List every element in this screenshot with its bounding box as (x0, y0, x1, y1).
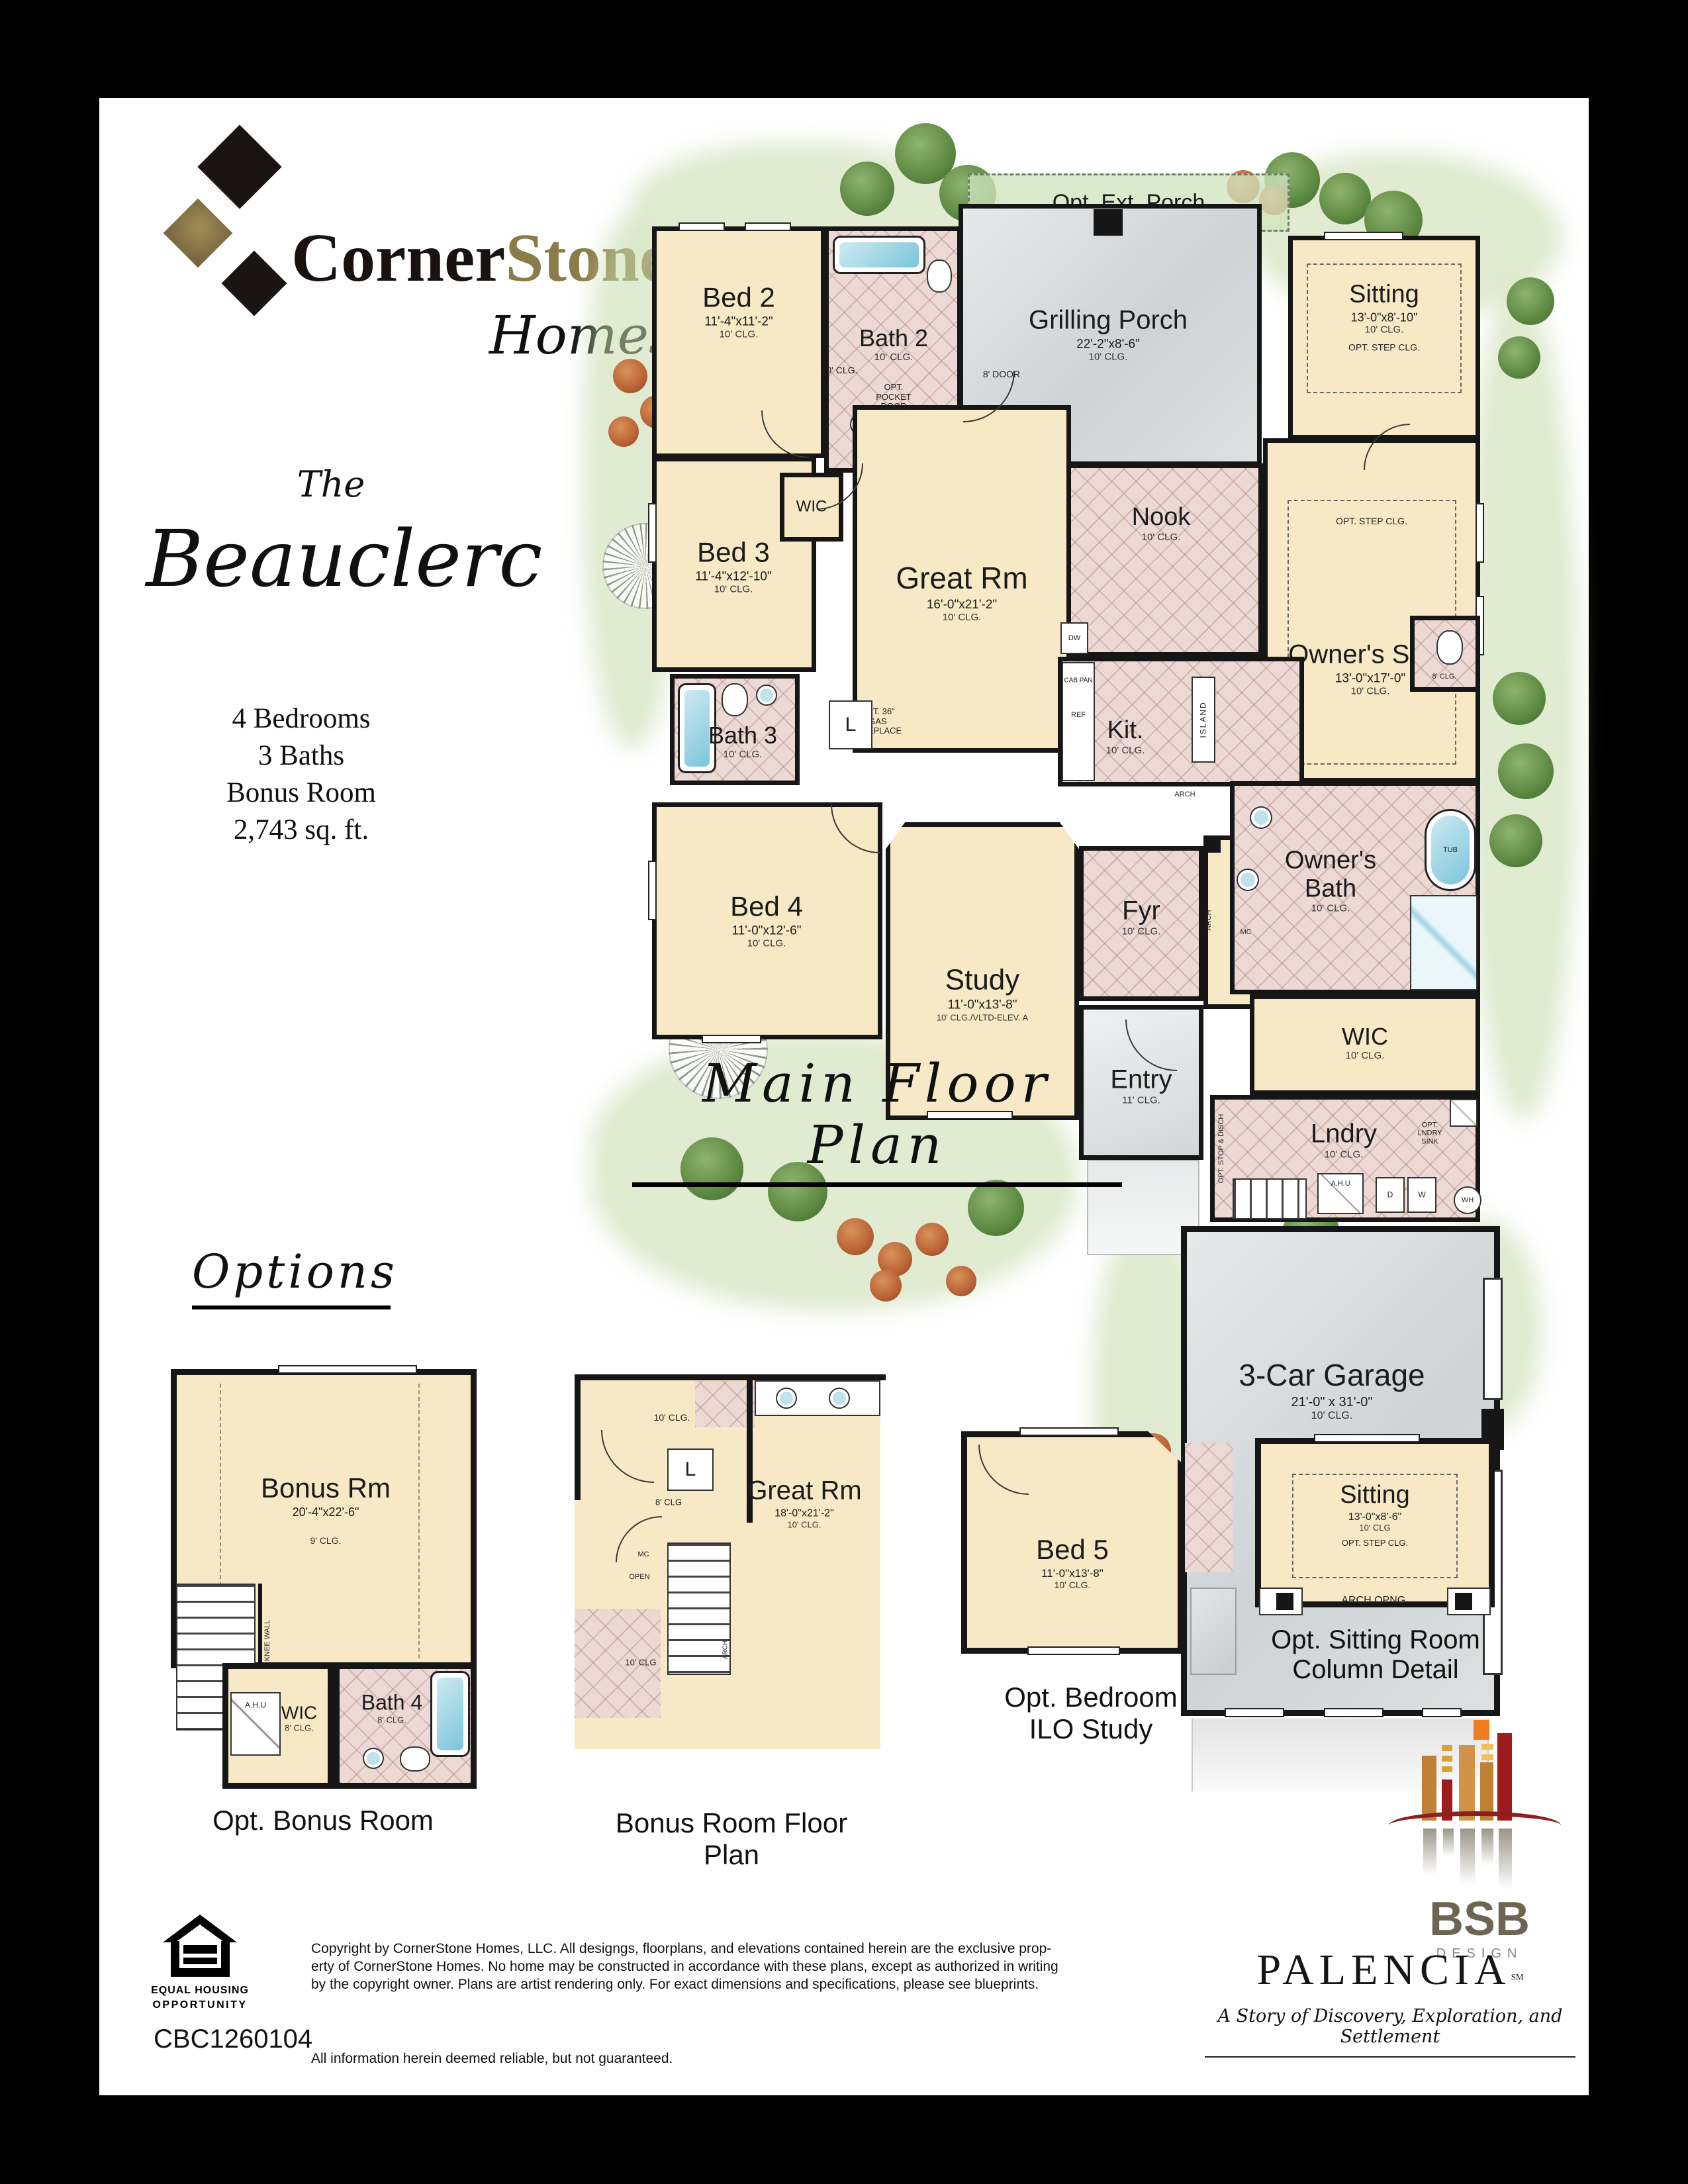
plan-title-the: The (252, 463, 410, 505)
garage-door-opening (1483, 1278, 1503, 1400)
sink (363, 1748, 384, 1769)
bsb-logo-dash (1481, 1744, 1493, 1750)
open-label: OPEN (629, 1573, 649, 1581)
hall-tile-strip (1185, 1443, 1233, 1572)
stairs-to-bonus (1233, 1178, 1307, 1219)
knee-wall-label: KNEE WALL (263, 1620, 271, 1662)
logo-corner: Corner (291, 220, 505, 296)
equal-sign-bar (183, 1945, 217, 1954)
disclaimer-text: All information herein deemed reliable, … (311, 2051, 673, 2067)
main-floor-plan-heading: Main Floor Plan (632, 1053, 1122, 1187)
window (1324, 232, 1403, 240)
bath-counter (755, 1380, 880, 1416)
room-label-great-rm: Great Rm 16'-0"x21'-2" 10' CLG. (896, 561, 1027, 624)
bsb-logo-bar (1459, 1745, 1475, 1821)
wh-label: WH (1462, 1196, 1474, 1204)
suite-opt-step: OPT. STEP CLG. (1336, 516, 1407, 527)
options-heading: Options (192, 1245, 391, 1309)
room-label-foyer: Fyr 10' CLG. (1122, 896, 1161, 938)
window (1476, 503, 1484, 563)
bsb-logo-reflection (1499, 1828, 1512, 1889)
bush-green (1498, 336, 1540, 379)
room-label-bath2: Bath 2 10' CLG. (859, 325, 928, 363)
bush-green (1507, 277, 1554, 325)
ref-label: REF (1071, 711, 1086, 719)
wall-segment (575, 1374, 581, 1500)
sink (776, 1388, 797, 1409)
bsb-logo-reflection (1481, 1828, 1493, 1866)
eho-text-2: OPPORTUNITY (127, 1999, 273, 2011)
bsb-logo-reflection (1443, 1828, 1454, 1856)
room-label-owners-wic: WIC 10' CLG. (1342, 1023, 1388, 1062)
caption-opt-bedroom-ilo-study: Opt. Bedroom ILO Study (1004, 1682, 1177, 1745)
dryer-label: D (1387, 1190, 1393, 1199)
shower (1410, 895, 1477, 990)
bush-orange (837, 1218, 874, 1255)
bush-orange (946, 1266, 976, 1296)
copyright-line-3: by the copyright owner. Plans are artist… (311, 1975, 1192, 1993)
column-post (1203, 835, 1221, 853)
bsb-logo-bar (1474, 1720, 1489, 1740)
room-label-bonus-wic: WIC 8' CLG. (281, 1703, 317, 1734)
room-label-bed4: Bed 4 11'-0"x12'-6" 10' CLG. (730, 890, 803, 949)
copyright-line-2: erty of CornerStone Homes. No home may b… (311, 1958, 1192, 1975)
license-number: CBC1260104 (154, 2024, 312, 2054)
bush-orange (608, 416, 639, 447)
room-label-bonus: Bonus Rm 20'-4"x22'-6" 9' CLG. (261, 1472, 391, 1546)
toilet (400, 1746, 430, 1772)
plan-specs: 4 Bedrooms 3 Baths Bonus Room 2,743 sq. … (152, 700, 450, 849)
spec-bonus: Bonus Room (152, 775, 450, 812)
spec-sqft: 2,743 sq. ft. (152, 812, 450, 849)
island-label: ISLAND (1199, 701, 1207, 737)
room-label-kitchen: Kit. 10' CLG. (1106, 716, 1145, 756)
eho-text-1: EQUAL HOUSING (127, 1985, 273, 1997)
caption-bonus-room-floor-plan: Bonus Room Floor Plan (616, 1807, 847, 1871)
clg-label: 10' CLG. (654, 1413, 690, 1423)
window (1314, 1434, 1420, 1443)
palencia-tagline: A Story of Discovery, Exploration, and S… (1205, 2006, 1575, 2058)
laundry-sink-label: OPT. LNDRY SINK (1417, 1121, 1442, 1146)
arch-label: ARCH (722, 1640, 729, 1659)
window (1019, 1427, 1119, 1436)
linen-label: L (685, 1458, 696, 1481)
bathtub (833, 236, 925, 274)
room-label-bed5: Bed 5 11'-0"x13'-8" 10' CLG. (1036, 1534, 1109, 1591)
window (1422, 1708, 1462, 1717)
mc-label: MC (1240, 928, 1251, 936)
room-label-bath3: Bath 3 10' CLG. (708, 722, 777, 761)
clg8-label: 8' CLG (655, 1498, 682, 1508)
bsb-logo-dash (1442, 1756, 1452, 1762)
wc-clg-label: 8' CLG. (1432, 673, 1457, 681)
room-label-grilling-porch: Grilling Porch 22'-2"x8'-6" 10' CLG. (1029, 306, 1188, 363)
bush-green (1498, 743, 1554, 799)
window (1027, 1646, 1120, 1655)
spec-bedrooms: 4 Bedrooms (152, 700, 450, 737)
column-marker (1276, 1593, 1293, 1610)
window (745, 222, 791, 231)
window (648, 503, 657, 563)
window (1225, 1708, 1284, 1717)
sink (1250, 806, 1272, 829)
sink (1237, 869, 1259, 891)
washer-label: W (1418, 1190, 1425, 1199)
palencia-sm: SM (1511, 1972, 1524, 1982)
room-label-garage: 3-Car Garage 21'-0" x 31'-0" 10' CLG. (1239, 1358, 1425, 1422)
plan-title-name: Beauclerc (99, 513, 589, 604)
window (1324, 1708, 1383, 1717)
copyright-line-1: Copyright by CornerStone Homes, LLC. All… (311, 1940, 1192, 1958)
sink (829, 1388, 850, 1409)
bush-green (1319, 173, 1371, 224)
equal-housing-icon-inner (175, 1924, 224, 1942)
hall-clg-label: 10' CLG. (821, 365, 858, 376)
room-label-laundry: Lndry 10' CLG. (1311, 1119, 1377, 1161)
bsb-logo-name: BSB (1403, 1892, 1556, 1946)
bsb-logo-dash (1442, 1766, 1452, 1772)
sink (756, 685, 777, 706)
bonus-ahu-label: A.H.U (245, 1701, 266, 1709)
equal-sign-bar (183, 1958, 217, 1964)
toilet (1436, 630, 1463, 665)
window (702, 1035, 761, 1043)
arch-label: ARCH (1174, 790, 1195, 798)
bsb-logo-reflection (1423, 1828, 1436, 1875)
bsb-logo-dash (1481, 1754, 1493, 1760)
room-label-nook: Nook 10' CLG. (1132, 503, 1191, 543)
bonus-dashed-line (418, 1384, 420, 1658)
porch-post (1094, 209, 1123, 236)
bathtub (430, 1671, 470, 1757)
toilet (722, 683, 748, 716)
bsb-logo-dash (1442, 1745, 1452, 1751)
room-label-sitting: Sitting 13'-0"x8'-10" 10' CLG. OPT. STEP… (1348, 280, 1420, 352)
clg-label: 10' CLG (625, 1658, 656, 1668)
dw-label: DW (1068, 634, 1080, 642)
bsb-logo-reflection (1460, 1828, 1475, 1884)
room-nook (1058, 463, 1263, 657)
pocket-door-label: OPT. POCKET DOOR (876, 383, 911, 412)
opt-stop-disch-label: OPT. STOP & DISCH (1217, 1114, 1225, 1184)
palencia-logo: PALENCIASM (1211, 1945, 1569, 1995)
wall-segment (575, 1374, 886, 1380)
bush-orange (915, 1223, 949, 1256)
bush-orange (613, 359, 647, 393)
bush-orange (870, 1270, 902, 1302)
room-label-bath4: Bath 4 8' CLG. (361, 1691, 423, 1725)
bsb-logo-bar (1497, 1733, 1512, 1821)
tub-label: TUB (1443, 846, 1458, 854)
bush-green (968, 1180, 1024, 1236)
bush-green (1493, 672, 1546, 725)
room-label-sitting-detail: Sitting 13'-0"x8'-6" 10' CLG OPT. STEP C… (1340, 1481, 1410, 1548)
caption-opt-bonus-room: Opt. Bonus Room (212, 1805, 434, 1836)
room-label-study: Study 11'-0"x13'-8" 10' CLG./VLTD-ELEV. … (937, 963, 1028, 1022)
cabpan-label: CAB PAN (1064, 677, 1092, 684)
column-marker (1455, 1593, 1472, 1610)
window (679, 222, 725, 231)
bsb-logo-arc (1389, 1811, 1561, 1840)
bush-green (840, 162, 894, 216)
arch-label: ARCH (1205, 910, 1213, 930)
arch-opng-label: ARCH OPNG. (1341, 1595, 1408, 1607)
linen-label: L (845, 714, 857, 736)
bush-green (1489, 814, 1542, 867)
ahu-label: A.H.U (1331, 1180, 1350, 1188)
bsb-logo-bar (1422, 1756, 1436, 1821)
room-label-bed2: Bed 2 11'-4"x11'-2" 10' CLG. (702, 281, 775, 340)
toilet (927, 260, 952, 293)
palencia-name: PALENCIA (1256, 1946, 1511, 1994)
room-label-bed3: Bed 3 11'-4"x12'-10" 10' CLG. (695, 536, 771, 595)
spec-baths: 3 Baths (152, 737, 450, 775)
porch-strip (1190, 1588, 1237, 1675)
caption-opt-sitting-room: Opt. Sitting Room Column Detail (1271, 1625, 1480, 1685)
bonus-floor-tile-top (695, 1381, 755, 1427)
room-label-owners-bath: Owner's Bath 10' CLG. (1285, 847, 1376, 915)
room-label-great-rm-option: Great Rm 18'-0"x21'-2" 10' CLG. (747, 1476, 861, 1529)
laundry-sink (1450, 1099, 1477, 1127)
copyright-text: Copyright by CornerStone Homes, LLC. All… (311, 1940, 1192, 1993)
window (278, 1365, 417, 1374)
window (648, 861, 657, 920)
